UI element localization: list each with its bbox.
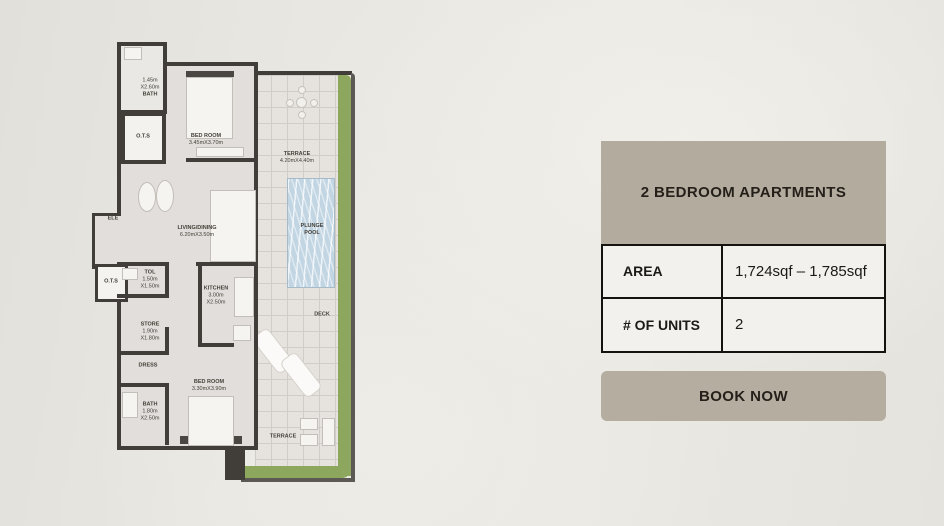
green-border [338, 75, 351, 476]
room-label-bath-1: BATH 1.45m X2.60m [135, 78, 165, 99]
wall-segment [186, 158, 258, 162]
room-label-living-dining: LIVING/DINING 6.20mX3.50m [166, 225, 228, 239]
kitchen-counter [234, 277, 254, 317]
patio-table-icon [296, 97, 307, 108]
room-label-bath-2: BATH 1.80m X2.50m [135, 402, 165, 423]
armchair [156, 180, 174, 212]
room-label-terrace-top: TERRACE 4.20mX4.40m [267, 151, 327, 165]
wall-segment [198, 343, 234, 347]
room-label-bedroom-1: BED ROOM 3.45mX3.70m [176, 133, 236, 147]
room-label-store: STORE 1.90m X1.80m [135, 322, 165, 343]
patio-chair-icon [286, 99, 294, 107]
plot-outline [241, 478, 355, 482]
patio-chair-icon [310, 99, 318, 107]
page-background: BATH 1.45m X2.60m O.T.S BED ROOM 3.45mX3… [0, 0, 944, 526]
terrace-furniture [322, 418, 335, 446]
bedside-table [234, 436, 242, 444]
apartment-type-title: 2 BEDROOM APARTMENTS [641, 184, 847, 201]
room-label-ots-1: O.T.S [128, 134, 158, 141]
wall-segment [117, 383, 169, 387]
patio-chair-icon [298, 111, 306, 119]
wall-segment [250, 71, 352, 75]
plot-outline [351, 73, 355, 480]
units-label: # OF UNITS [603, 299, 723, 352]
floor-plan: BATH 1.45m X2.60m O.T.S BED ROOM 3.45mX3… [0, 0, 420, 526]
room-label-bedroom-2: BED ROOM 3.30mX3.90m [178, 379, 240, 393]
wall-segment [165, 387, 169, 445]
area-label: AREA [603, 246, 723, 299]
room-label-kitchen: KITCHEN 3.00m X2.50m [200, 286, 232, 307]
bed [186, 77, 233, 139]
wall-segment [117, 351, 169, 355]
wall-segment [225, 446, 245, 480]
room-label-dress: DRESS [133, 363, 163, 370]
room-label-plunge-pool: PLUNGE POOL [298, 223, 326, 237]
bedside-table [180, 436, 188, 444]
bed [188, 396, 234, 446]
area-value: 1,724sqf – 1,785sqf [723, 246, 884, 299]
green-border [243, 466, 351, 478]
apartment-type-header: 2 BEDROOM APARTMENTS [601, 141, 886, 244]
book-now-button[interactable]: BOOK NOW [601, 371, 886, 421]
room-label-toilet: TOL 1.50m X1.50m [135, 270, 165, 291]
wardrobe [196, 147, 244, 157]
wall-segment [117, 262, 166, 266]
terrace-furniture [300, 418, 318, 430]
wall-segment [196, 262, 258, 266]
sink [124, 47, 142, 60]
units-value: 2 [723, 299, 884, 352]
armchair [138, 182, 156, 212]
room-label-elevator: ELE [103, 216, 123, 223]
kitchen-island [233, 325, 251, 341]
wall-segment [165, 262, 169, 298]
patio-chair-icon [298, 86, 306, 94]
room-label-terrace-bottom: TERRACE [263, 434, 303, 441]
room-label-deck: DECK [307, 312, 337, 319]
wall-segment [117, 294, 169, 298]
room-label-ots-2: O.T.S [98, 279, 124, 286]
unit-info-table: AREA 1,724sqf – 1,785sqf # OF UNITS 2 [601, 244, 886, 353]
